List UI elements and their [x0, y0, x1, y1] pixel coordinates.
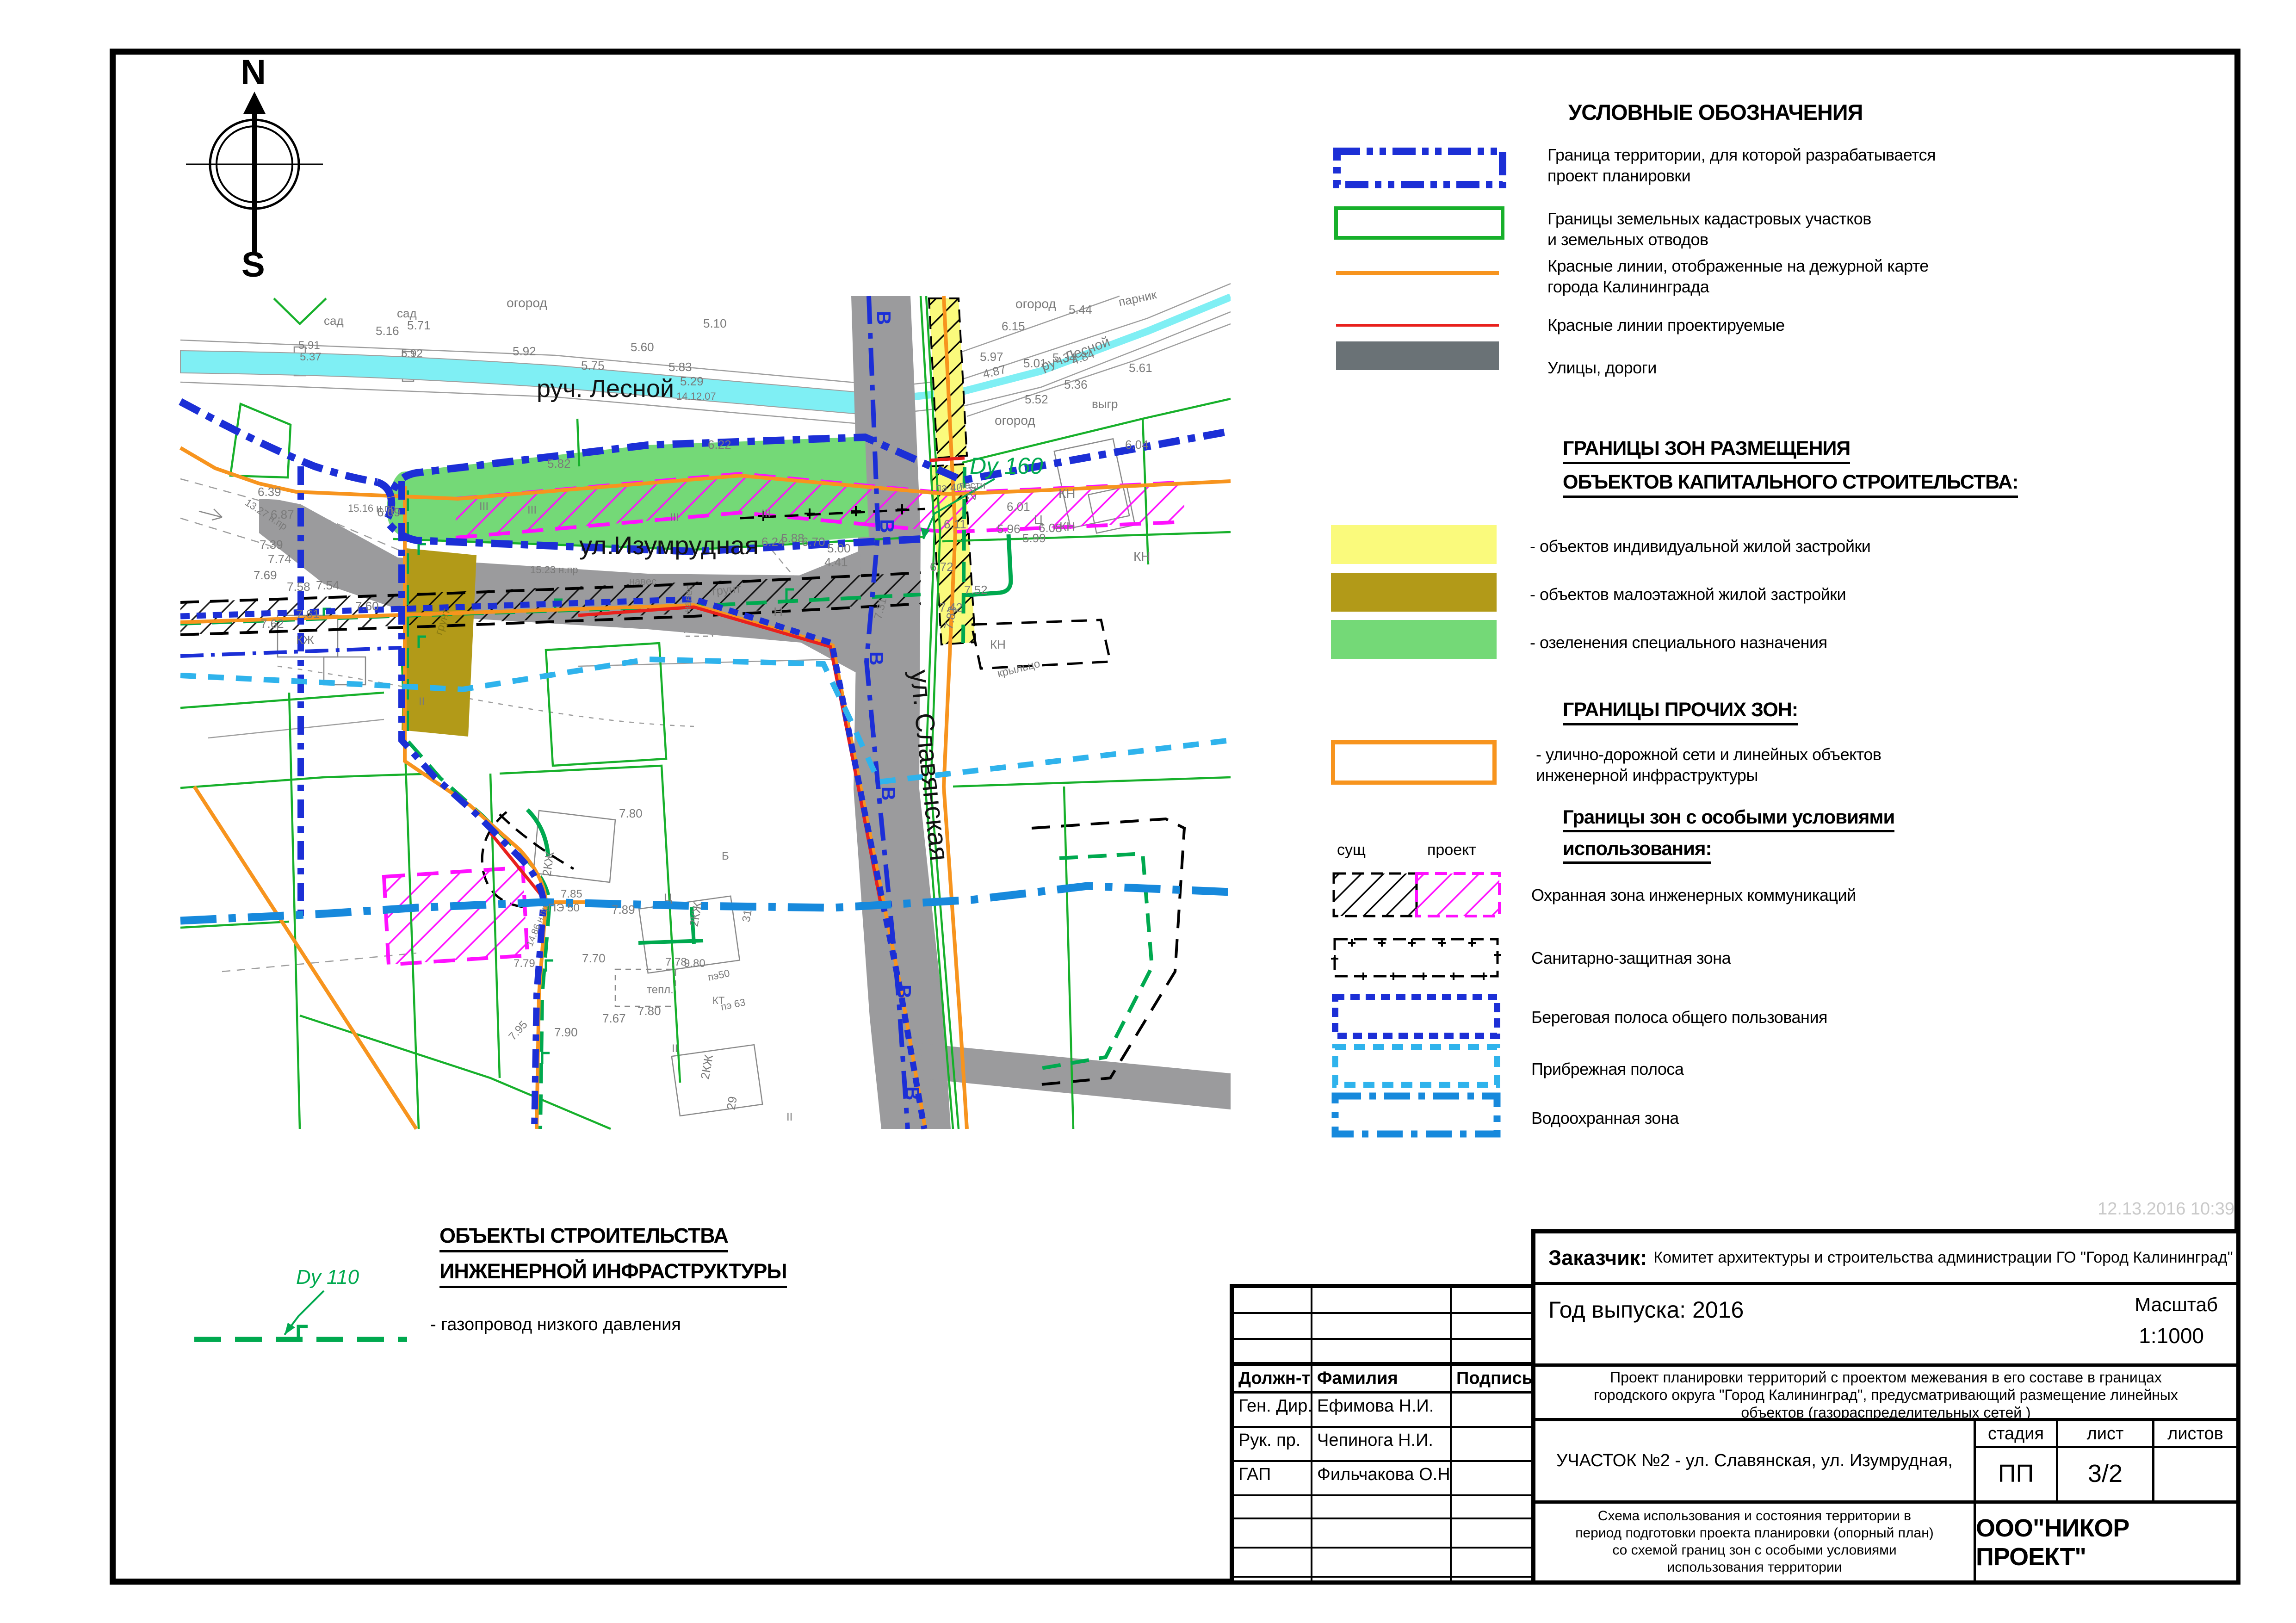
map-label: 7.95 [506, 1018, 530, 1043]
red-lines-duty [180, 296, 1231, 1129]
signature-row: ГАП Фильчакова О.Н. [1234, 1462, 1531, 1496]
map-label: навес [629, 576, 656, 587]
map-label: 7.90 [554, 1025, 578, 1039]
name-cell: Чепинога Н.И. [1312, 1428, 1452, 1460]
map-label: 5.92 [513, 344, 536, 358]
company-name: ООО"НИКОР ПРОЕКТ" [1976, 1504, 2236, 1581]
signature-cell [1452, 1394, 1531, 1426]
utility-zone-existing [180, 573, 1184, 1085]
signature-row: Ген. Дир. Ефимова Н.И. [1234, 1394, 1531, 1428]
legend-special-title-2: использования: [1563, 837, 1711, 864]
map-label: III [761, 508, 771, 520]
road-intersection [786, 551, 861, 675]
map-labels-layer: руч. Леснойул.Изумруднаяул. СлавянскаяDy… [243, 287, 1158, 1123]
legend-zones-title-2: ОБЪЕКТОВ КАПИТАЛЬНОГО СТРОИТЕЛЬСТВА: [1563, 471, 2018, 498]
map-label: 5.83 [668, 360, 692, 374]
map-label: В [873, 311, 895, 325]
map-label: парник [1117, 287, 1158, 309]
stage-header: стадия [1976, 1421, 2058, 1446]
map-label: Ц [664, 892, 672, 904]
map-label: 6.39 [258, 485, 281, 499]
sheets-value [2154, 1448, 2236, 1500]
map-label: 7.62 [260, 617, 284, 631]
map-label: 5.91 [298, 339, 320, 352]
map-label: 6.22 [708, 438, 731, 452]
legend-swatch-red-lines-projected [1336, 324, 1499, 327]
map-label: 5.10 [703, 316, 727, 330]
map-label: 5.01 [1023, 356, 1047, 370]
map-label: КН [1058, 486, 1076, 501]
year-value: 2016 [1692, 1297, 1744, 1323]
customer-row: Заказчик: Комитет архитектуры и строител… [1535, 1233, 2236, 1285]
name-header: Фамилия [1312, 1366, 1452, 1391]
legend-swatch-project-boundary [1332, 146, 1508, 192]
map-label: III [479, 500, 489, 513]
legend-label: - улично-дорожной сети и линейных объект… [1536, 744, 1881, 786]
map-label: огород [1015, 297, 1056, 311]
legend-label: Границы земельных кадастровых участков и… [1547, 208, 1871, 250]
legend-swatch-lowrise-housing [1331, 573, 1497, 612]
signature-cell [1452, 1462, 1531, 1494]
legend-swatch-shoreline [1331, 993, 1502, 1040]
map-label: II [786, 1111, 792, 1123]
map-label: 6.09 [377, 505, 401, 519]
sheet-value: 3/2 [2058, 1448, 2154, 1500]
map-label: 5.37 [300, 351, 322, 363]
map-label: 5.75 [581, 359, 605, 372]
map-label: Dy 160 [970, 453, 1043, 479]
map-label: 5.52 [1025, 392, 1048, 406]
objects-title-1: ОБЪЕКТЫ СТРОИТЕЛЬСТВА [439, 1224, 728, 1252]
map-label: 5.44 [1069, 303, 1092, 316]
map-label: 6.70 [802, 535, 825, 549]
map-label: 7.78 [665, 956, 687, 968]
print-timestamp: 12.13.2016 10:39 [2059, 1199, 2234, 1219]
map-label: Б [722, 850, 729, 862]
stage-values: ПП 3/2 [1976, 1448, 2236, 1500]
map-label: 5.88 [781, 531, 805, 545]
legend-label: - озеленения специального назначения [1530, 632, 1827, 653]
map-label: В [876, 519, 898, 533]
map-label: 5.96 [997, 522, 1021, 536]
map-label: тепл. [647, 984, 674, 996]
map-label: В [893, 985, 915, 998]
legend-label: Красные линии, отображенные на дежурной … [1547, 255, 1929, 297]
legend-other-zones-title: ГРАНИЦЫ ПРОЧИХ ЗОН: [1563, 699, 1798, 725]
map-label: 2КЖ [539, 851, 557, 877]
map-label: 5.60 [631, 340, 654, 354]
legend-label: Охранная зона инженерных коммуникаций [1531, 885, 1856, 905]
map-label: руч. Лесной [537, 375, 674, 403]
map-label: 5.92 [401, 347, 423, 360]
map-label: сад [324, 314, 344, 328]
map-label: 6.04 [1125, 438, 1149, 452]
map-label: 6.01 [1007, 500, 1030, 514]
map-label: 7.54 [316, 578, 340, 592]
signature-cell [1452, 1428, 1531, 1460]
compass-north-arrow [243, 92, 266, 114]
signatures-header-row: Должн-ть Фамилия Подпись [1234, 1364, 1531, 1394]
year-line: Год выпуска: 2016 [1548, 1296, 1744, 1323]
title-block: Заказчик: Комитет архитектуры и строител… [1531, 1229, 2240, 1585]
scheme-description: Схема использования и состояния территор… [1535, 1504, 1976, 1581]
zone-lowrise-housing [402, 548, 477, 737]
map-label: 31 [740, 909, 754, 923]
legend-swatch-special-greenery [1331, 620, 1497, 659]
legend-swatch-individual-housing [1331, 525, 1497, 564]
name-cell: Фильчакова О.Н. [1312, 1462, 1452, 1494]
legend-label: Граница территории, для которой разрабат… [1547, 144, 1936, 186]
map-label: огород [995, 413, 1035, 427]
map-label: 29 [724, 1095, 740, 1111]
map-label: 6.15 [1002, 319, 1025, 333]
map-label: 7.67 [602, 1011, 626, 1025]
legend-swatch-utility-protection [1331, 871, 1502, 919]
map-label: крыльцо [996, 657, 1041, 680]
signature-row: Рук. пр. Чепинога Н.И. [1234, 1428, 1531, 1462]
map-canvas: руч. Леснойул.Изумруднаяул. СлавянскаяDy… [111, 278, 1231, 1138]
drawing-sheet: N S [0, 0, 2296, 1623]
compass-south-label: S [241, 245, 265, 278]
legend-special-title-1: Границы зон с особыми условиями [1563, 806, 1894, 832]
map-label: В [902, 1086, 923, 1100]
map-label: пэ50 [707, 967, 731, 983]
map-label: КН [990, 638, 1006, 651]
map-label: 7.69 [254, 568, 277, 582]
stream-band-west [180, 351, 860, 414]
compass-north-label: N [241, 56, 266, 92]
customer-value: Комитет архитектуры и строительства адми… [1653, 1249, 2233, 1267]
map-label: 7.60 [355, 599, 379, 613]
sheets-header: листов [2154, 1421, 2236, 1446]
map-label: 7.52 [964, 583, 988, 597]
signatures-table: Должн-ть Фамилия Подпись Ген. Дир. Ефимо… [1230, 1284, 1531, 1585]
map-label: 5.00 [827, 541, 851, 555]
map-label: 5.36 [1064, 378, 1088, 391]
position-cell: Рук. пр. [1234, 1428, 1312, 1460]
map-label: 7.74 [268, 552, 291, 566]
customer-label: Заказчик: [1548, 1246, 1647, 1270]
map-label: 5.29 [680, 374, 704, 388]
map-label: Н [774, 605, 783, 619]
map-label: 5.16 [376, 324, 399, 338]
map-label: 5.71 [407, 318, 431, 332]
map-label: 7.80 [619, 806, 643, 820]
map-label: II [672, 1042, 678, 1055]
map-label: 7.80 [637, 1004, 661, 1018]
legend-swatch-red-lines-duty [1336, 271, 1499, 275]
map-label: 7.58 [287, 580, 310, 594]
map-label: 2КЖ [687, 901, 705, 928]
map-label: 5.97 [980, 350, 1003, 364]
year-label: Год выпуска: [1548, 1297, 1686, 1323]
legend-swatch-cadastral [1332, 204, 1508, 242]
legend-swatch-water-protection [1331, 1092, 1502, 1138]
legend-col-project: проект [1427, 841, 1476, 859]
map-label: 24 [964, 484, 980, 501]
stage-value: ПП [1976, 1448, 2058, 1500]
legend-swatch-streets [1336, 341, 1499, 370]
legend-label: Береговая полоса общего пользования [1531, 1007, 1827, 1028]
coastal-strip-line [180, 659, 1231, 782]
map-label: 5.61 [1129, 361, 1152, 375]
map-label: 5.99 [1022, 531, 1046, 545]
map-label: выгр [1092, 397, 1118, 411]
map-label: 7.39 [260, 538, 283, 551]
map-label: ПЭ 50 [548, 902, 580, 914]
legend-label: - объектов индивидуальной жилой застройк… [1530, 536, 1870, 557]
map-label: ул.Изумрудная [579, 531, 759, 560]
scale-label: Масштаб [2135, 1294, 2218, 1316]
site-stage-row: УЧАСТОК №2 - ул. Славянская, ул. Изумруд… [1535, 1421, 2236, 1504]
position-cell: Ген. Дир. [1234, 1394, 1312, 1426]
map-label: огород [507, 296, 547, 310]
map-label: КТ [712, 995, 724, 1006]
map-label: КЖ [296, 633, 314, 647]
gas-pipe-symbol [185, 1270, 426, 1351]
map-label: 7.85 [561, 888, 582, 900]
gas-pipe-label: - газопровод низкого давления [430, 1315, 681, 1335]
year-scale-row: Год выпуска: 2016 Масштаб 1:1000 [1535, 1285, 2236, 1367]
legend-label: - объектов малоэтажной жилой застройки [1530, 584, 1846, 605]
stage-grid: стадия лист листов ПП 3/2 [1976, 1421, 2236, 1500]
map-label: 15.23 н.пр [530, 564, 578, 576]
map-label: навес [681, 584, 695, 613]
legend-label: Прибрежная полоса [1531, 1059, 1683, 1079]
name-cell: Ефимова Н.И. [1312, 1394, 1452, 1426]
water-protection-line [180, 886, 1231, 921]
objects-title-2: ИНЖЕНЕРНОЙ ИНФРАСТРУКТУРЫ [439, 1259, 787, 1288]
map-label: 5.82 [547, 457, 571, 471]
position-cell: ГАП [1234, 1462, 1312, 1494]
map-label: 7.70 [582, 951, 606, 965]
sheet-header: лист [2058, 1421, 2154, 1446]
map-label: 2КЖ [698, 1053, 716, 1080]
site-label: УЧАСТОК №2 - ул. Славянская, ул. Изумруд… [1535, 1421, 1976, 1500]
legend-swatch-coastal [1331, 1043, 1502, 1089]
scheme-company-row: Схема использования и состояния территор… [1535, 1504, 2236, 1581]
map-label: 6.72 [930, 560, 953, 574]
legend-zones-title-1: ГРАНИЦЫ ЗОН РАЗМЕЩЕНИЯ [1563, 437, 1850, 464]
legend-col-existing: сущ [1337, 841, 1366, 859]
map-label: III [670, 511, 679, 524]
position-header: Должн-ть [1234, 1366, 1312, 1391]
project-description: Проект планировки территорий с проектом … [1535, 1367, 2236, 1421]
legend-title: УСЛОВНЫЕ ОБОЗНАЧЕНИЯ [1568, 99, 1863, 125]
map-label: 7.61 [296, 607, 320, 621]
legend-label: Красные линии проектируемые [1547, 315, 1785, 335]
stage-headers: стадия лист листов [1976, 1421, 2236, 1448]
compass-rose: N S [185, 56, 328, 278]
legend-label: Улицы, дороги [1547, 357, 1657, 378]
map-label: 6.11 [944, 517, 966, 531]
map-label: КН [1133, 549, 1151, 564]
legend-swatch-sanitary [1331, 935, 1502, 981]
map-label: 4.41 [824, 555, 848, 569]
map-label: В [878, 787, 899, 800]
legend-swatch-street-network [1331, 740, 1497, 785]
scale-value: 1:1000 [2139, 1323, 2204, 1348]
map-label: 9.80 [684, 957, 706, 970]
map-label: В [866, 651, 887, 665]
map-label: III [527, 504, 537, 516]
legend-label: Водоохранная зона [1531, 1108, 1679, 1128]
map-label: 7.89 [612, 903, 635, 917]
map-label: 7.79 [514, 957, 535, 970]
stream-band-east [860, 297, 1231, 403]
map-label: 14.12.07 [676, 390, 716, 402]
signature-header: Подпись [1452, 1366, 1531, 1391]
legend-label: Санитарно-защитная зона [1531, 948, 1731, 968]
map-label: II [419, 695, 425, 708]
cadastral-boundaries [180, 296, 1231, 1129]
